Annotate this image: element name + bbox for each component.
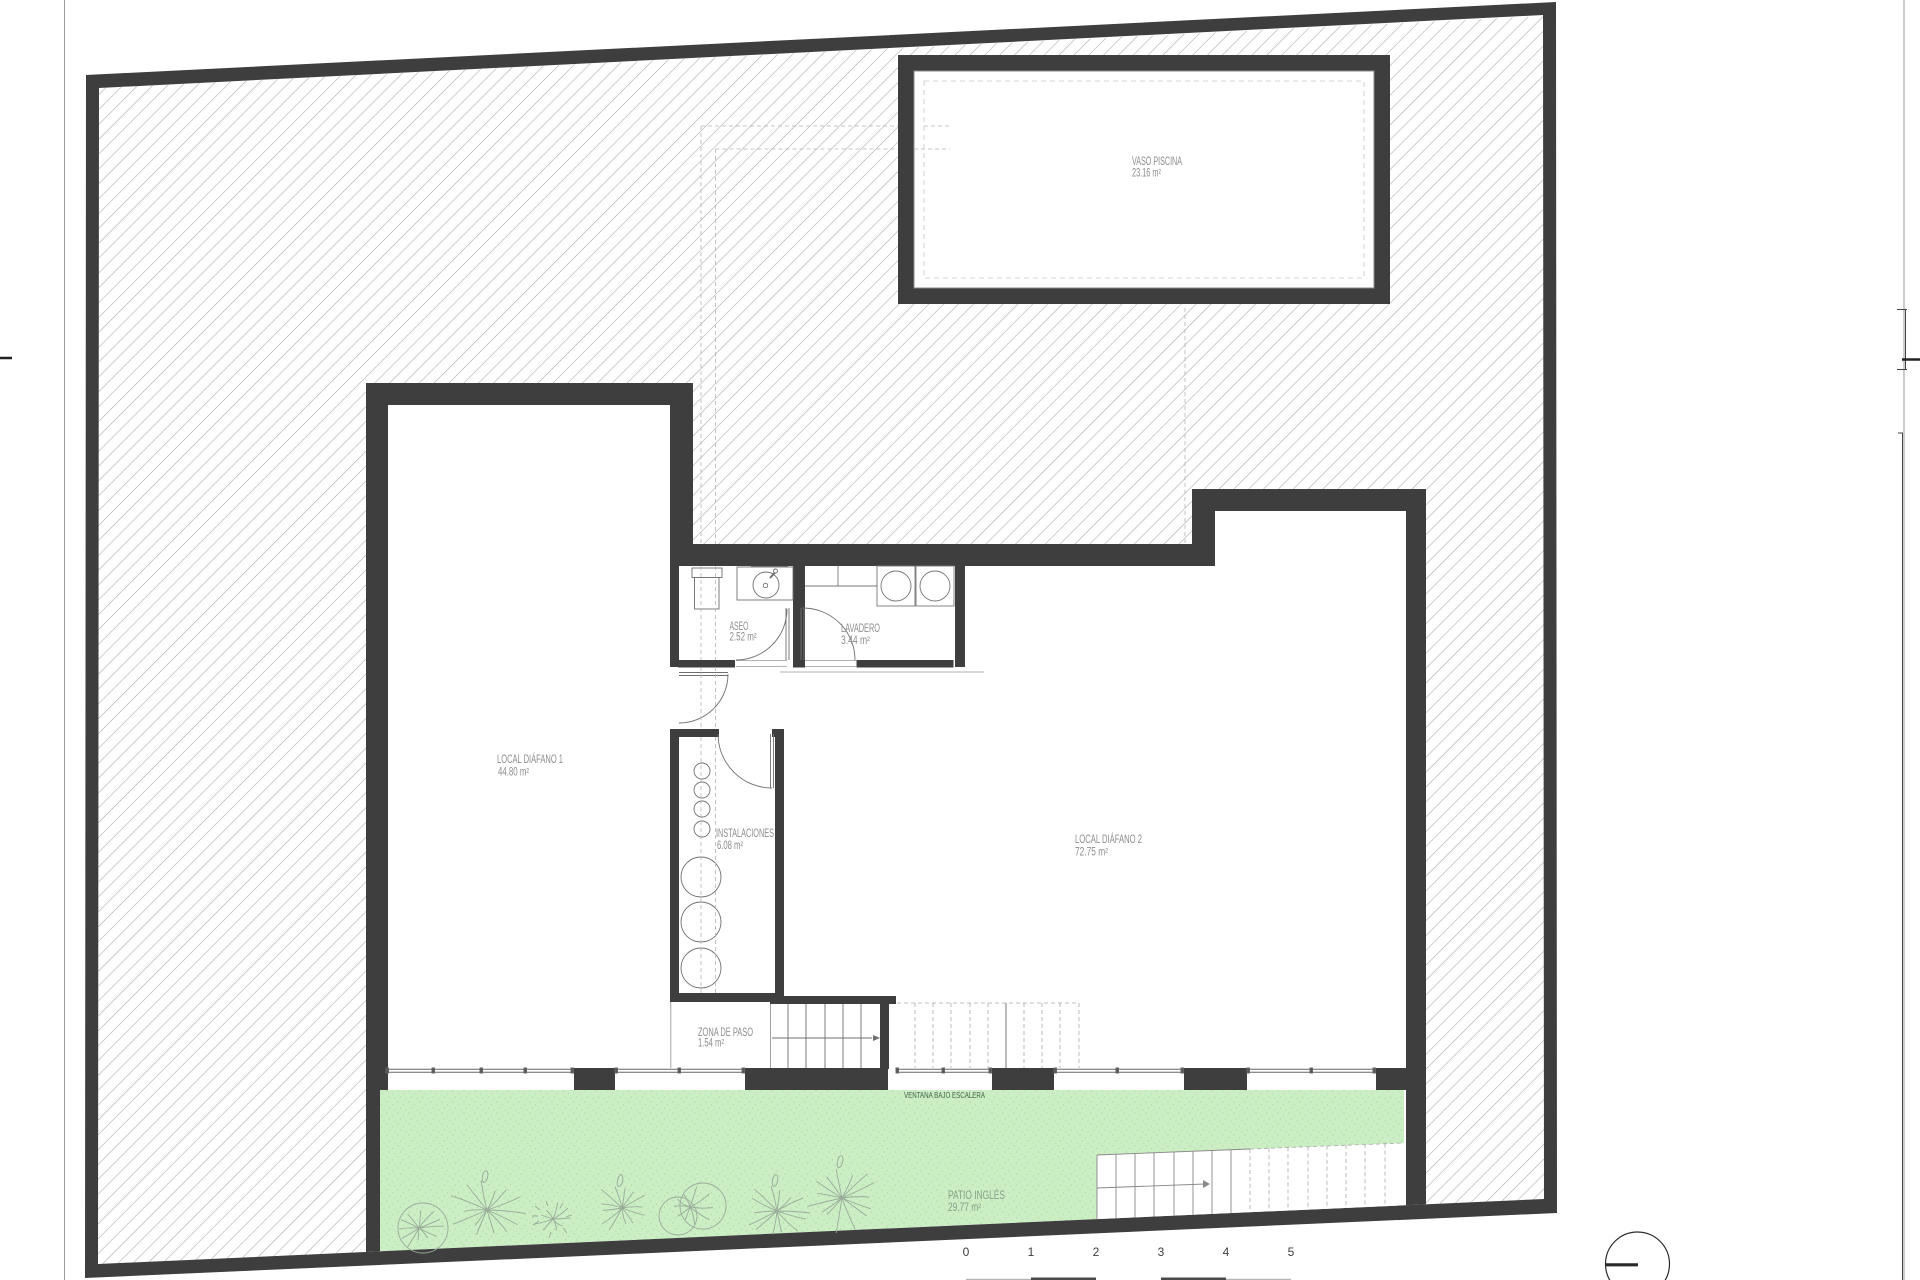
svg-text:2: 2 xyxy=(1093,1245,1100,1259)
svg-text:44.80 m²: 44.80 m² xyxy=(498,767,529,779)
svg-text:3: 3 xyxy=(1158,1245,1165,1259)
svg-text:23.16 m²: 23.16 m² xyxy=(1132,168,1161,180)
svg-text:1: 1 xyxy=(1028,1245,1035,1259)
svg-text:72.75 m²: 72.75 m² xyxy=(1075,847,1108,859)
svg-text:VASO PISCINA: VASO PISCINA xyxy=(1132,156,1182,168)
svg-text:PATIO INGLÉS: PATIO INGLÉS xyxy=(948,1189,1005,1202)
svg-text:0: 0 xyxy=(963,1245,970,1259)
svg-text:LOCAL DIÁFANO 1: LOCAL DIÁFANO 1 xyxy=(497,753,563,766)
svg-text:LAVADERO: LAVADERO xyxy=(841,623,880,635)
svg-text:LOCAL DIÁFANO 2: LOCAL DIÁFANO 2 xyxy=(1075,833,1142,846)
svg-text:3.44 m²: 3.44 m² xyxy=(841,635,870,647)
svg-text:INSTALACIONES: INSTALACIONES xyxy=(716,828,774,840)
svg-text:5: 5 xyxy=(1288,1245,1295,1259)
svg-text:29.77 m²: 29.77 m² xyxy=(948,1202,981,1214)
svg-text:2.52 m²: 2.52 m² xyxy=(730,632,757,644)
svg-text:4: 4 xyxy=(1223,1245,1230,1259)
svg-text:1.54 m²: 1.54 m² xyxy=(698,1038,724,1050)
svg-text:VENTANA BAJO ESCALERA: VENTANA BAJO ESCALERA xyxy=(904,1090,985,1100)
svg-text:6.08 m²: 6.08 m² xyxy=(717,840,743,852)
